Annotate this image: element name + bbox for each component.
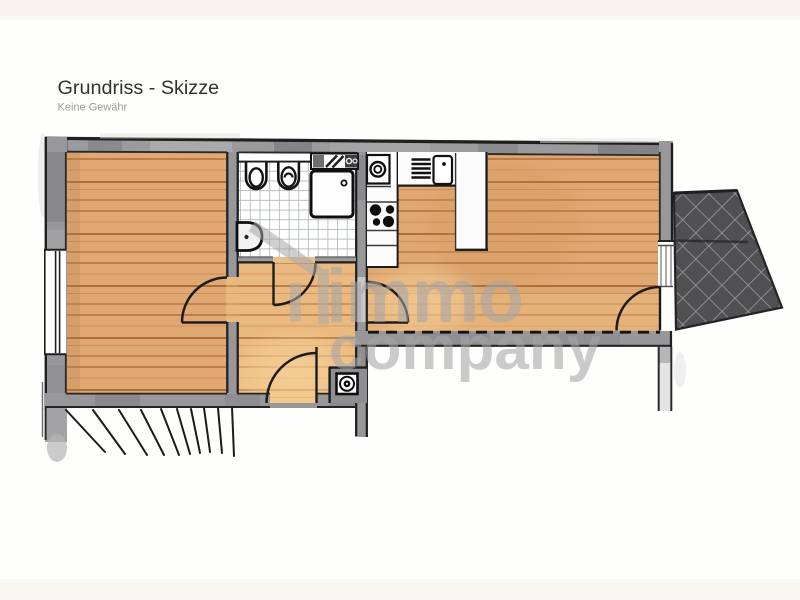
svg-text:company: company <box>329 314 602 383</box>
svg-text:Keine Gewähr: Keine Gewähr <box>58 102 128 114</box>
svg-text:Grundriss - Skizze: Grundriss - Skizze <box>58 77 220 99</box>
